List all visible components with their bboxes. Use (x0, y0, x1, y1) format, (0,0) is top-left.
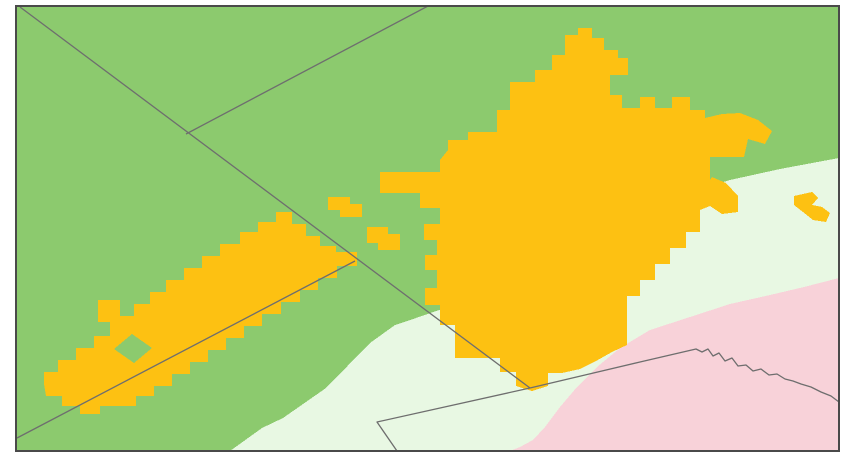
map-stage (0, 0, 850, 464)
map-viewport[interactable] (0, 0, 850, 464)
urban-island-small-c[interactable] (128, 380, 148, 392)
map-regions-layer (16, 6, 839, 451)
